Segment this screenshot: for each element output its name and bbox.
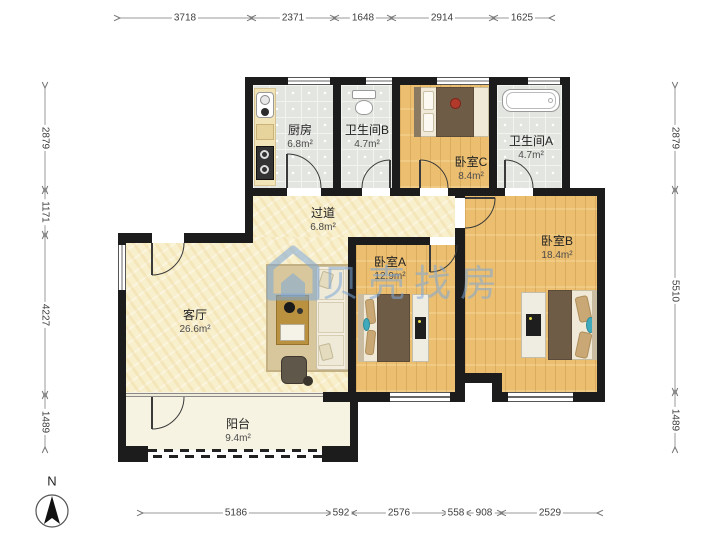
bathtub-drain-icon xyxy=(548,98,553,103)
dim-top-1: 3718 xyxy=(172,13,198,24)
dim-left-3: 4227 xyxy=(40,302,51,328)
bedroom-a-blanket xyxy=(377,294,410,362)
wall xyxy=(562,85,570,188)
wall xyxy=(322,446,358,462)
compass-north-label: N xyxy=(47,474,56,489)
dim-top-3: 1648 xyxy=(350,13,376,24)
dim-left-1: 2879 xyxy=(40,125,51,151)
label-hallway: 过道6.8m² xyxy=(310,207,336,233)
room-hallway-floor xyxy=(253,196,455,237)
wall xyxy=(245,85,253,243)
dim-bottom-5: 908 xyxy=(474,508,495,519)
wall xyxy=(348,237,430,245)
floorplan-canvas: 3718 2371 1648 2914 1625 2879 1171 4227 … xyxy=(0,0,720,540)
balcony-railing xyxy=(148,449,322,458)
bedroom-a-tv xyxy=(415,317,426,339)
wall xyxy=(448,188,455,196)
toilet-tank xyxy=(352,90,376,99)
label-bathroom-b: 卫生间B4.7m² xyxy=(345,124,389,150)
teapot-icon xyxy=(284,302,295,313)
wall xyxy=(253,188,287,196)
window xyxy=(390,392,450,402)
cup-icon xyxy=(297,308,303,314)
wall xyxy=(118,446,148,462)
wall xyxy=(457,237,465,245)
dim-top-4: 2914 xyxy=(429,13,455,24)
wall xyxy=(392,85,400,188)
dim-bottom-1: 5186 xyxy=(223,508,249,519)
exterior-notch xyxy=(465,383,492,402)
compass-icon xyxy=(36,495,68,527)
wall xyxy=(597,196,605,402)
dim-bottom-6: 2529 xyxy=(537,508,563,519)
dim-top-5: 1625 xyxy=(509,13,535,24)
dim-bottom-2: 592 xyxy=(331,508,352,519)
kitchen-cutting-board xyxy=(256,124,274,140)
wall xyxy=(455,188,465,198)
dim-bottom-3: 2576 xyxy=(386,508,412,519)
wall xyxy=(489,85,497,188)
label-bedroom-a: 卧室A12.9m² xyxy=(374,256,406,282)
wall xyxy=(184,233,253,243)
sofa-cushion xyxy=(318,302,344,333)
bedroom-b-blanket xyxy=(548,290,572,360)
label-living-room: 客厅26.6m² xyxy=(179,309,210,335)
window xyxy=(528,77,560,85)
wall xyxy=(348,245,356,402)
stove-burner-icon xyxy=(260,165,269,174)
window xyxy=(508,392,573,402)
kitchen-sink-basin-icon xyxy=(260,95,270,105)
window xyxy=(437,77,489,85)
bedroom-c-headboard xyxy=(414,87,421,137)
bedroom-c-cushion xyxy=(450,98,461,109)
label-bedroom-c: 卧室C8.4m² xyxy=(455,156,488,182)
label-balcony: 阳台9.4m² xyxy=(225,418,251,444)
wall xyxy=(455,373,502,383)
kitchen-kettle-icon xyxy=(261,108,269,116)
bedroom-c-blanket xyxy=(436,87,474,137)
label-bedroom-b: 卧室B18.4m² xyxy=(541,235,573,261)
bedroom-c-pillow xyxy=(423,91,434,110)
wall xyxy=(390,188,420,196)
dim-bottom-4: 558 xyxy=(446,508,467,519)
toilet-bowl xyxy=(355,100,373,115)
window xyxy=(118,245,126,290)
dim-right-1: 2879 xyxy=(670,125,681,151)
dim-top-2: 2371 xyxy=(280,13,306,24)
bedroom-b-tv xyxy=(526,314,541,336)
dim-right-2: 5510 xyxy=(670,278,681,304)
bedroom-c-pillow xyxy=(423,113,434,132)
dim-left-4: 1489 xyxy=(40,409,51,435)
dim-left-2: 1171 xyxy=(40,199,51,225)
dim-right-3: 1489 xyxy=(670,407,681,433)
window xyxy=(288,77,330,85)
stove-burner-icon xyxy=(260,150,269,159)
wall xyxy=(533,188,605,196)
table-tray xyxy=(280,324,305,341)
wall xyxy=(333,85,341,188)
wall xyxy=(492,383,502,402)
wall xyxy=(321,188,362,196)
wall xyxy=(118,233,152,243)
window xyxy=(366,77,392,85)
label-kitchen: 厨房6.8m² xyxy=(287,124,313,150)
balcony-sliding-door xyxy=(126,393,323,397)
side-stool xyxy=(303,376,313,386)
label-bathroom-a: 卫生间A4.7m² xyxy=(509,135,553,161)
wall xyxy=(465,188,505,196)
bedroom-a-cushion xyxy=(363,318,370,331)
